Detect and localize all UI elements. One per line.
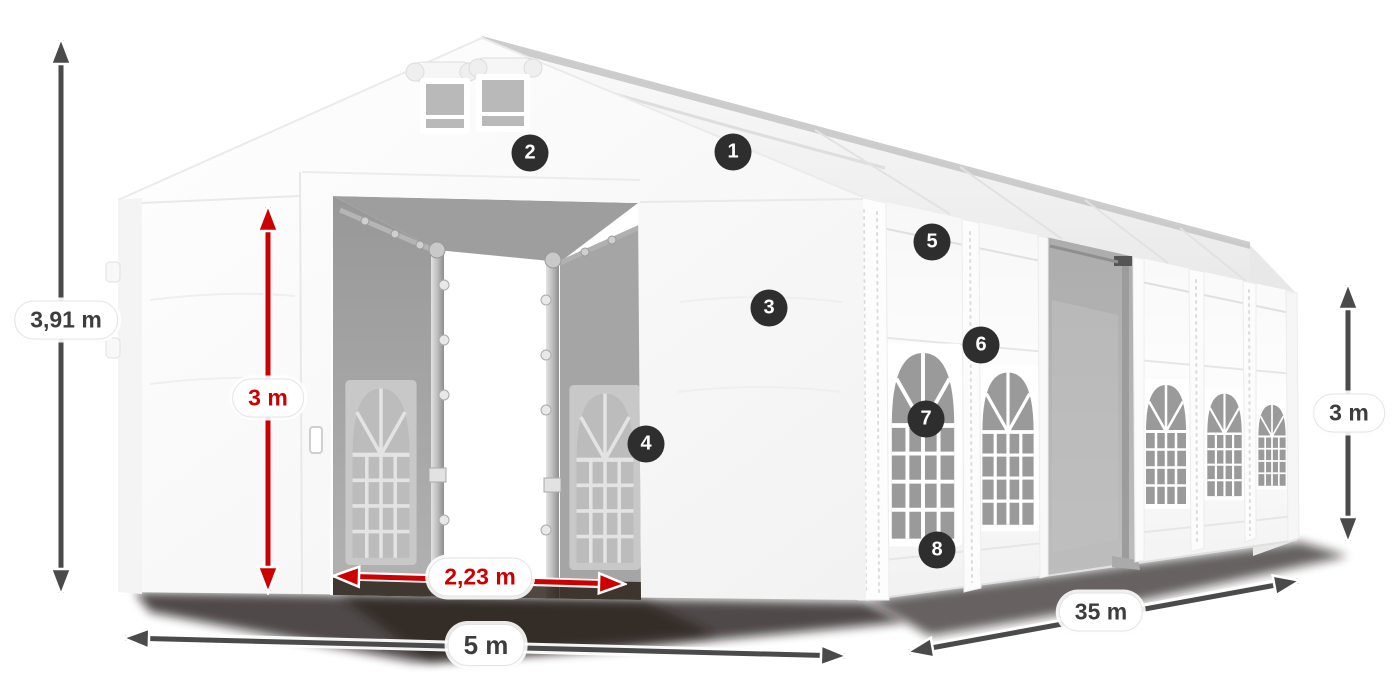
callout-3[interactable]: 3 [751,290,788,327]
total-height-label: 3,91 m [14,301,118,340]
callout-7[interactable]: 7 [908,401,945,438]
side-window-1 [884,344,962,547]
side-door-pole [1122,258,1129,560]
side-height-label: 3 m [1313,394,1385,433]
front-left-corner-band [118,198,142,594]
door-frame-pole-left [431,248,444,603]
interior-window-right [569,385,640,570]
interior-window-left [345,380,416,565]
side-window-4 [1203,389,1246,501]
tent-illustration [0,0,1400,700]
callout-1[interactable]: 1 [715,134,752,171]
callout-2[interactable]: 2 [512,135,549,172]
door-height-label: 3 m [232,379,304,418]
door-frame-pole-right [546,258,559,603]
strap-tab [106,262,120,282]
door-width-label: 2,23 m [428,558,532,597]
callout-6[interactable]: 6 [963,327,1000,364]
door-handle [310,427,322,453]
strap-tab [106,338,120,358]
side-door-opening [1046,237,1140,575]
side-window-2 [976,365,1040,531]
callout-4[interactable]: 4 [628,426,665,463]
tent-dimension-diagram: 3,91 m 3 m 2,23 m 5 m 35 m 3 m 1 2 3 4 5… [0,0,1400,700]
callout-5[interactable]: 5 [914,224,951,261]
callout-8[interactable]: 8 [919,532,956,569]
side-window-3 [1141,379,1191,509]
side-window-5 [1255,401,1289,489]
front-width-label: 5 m [448,624,525,666]
side-length-label: 35 m [1059,593,1143,632]
